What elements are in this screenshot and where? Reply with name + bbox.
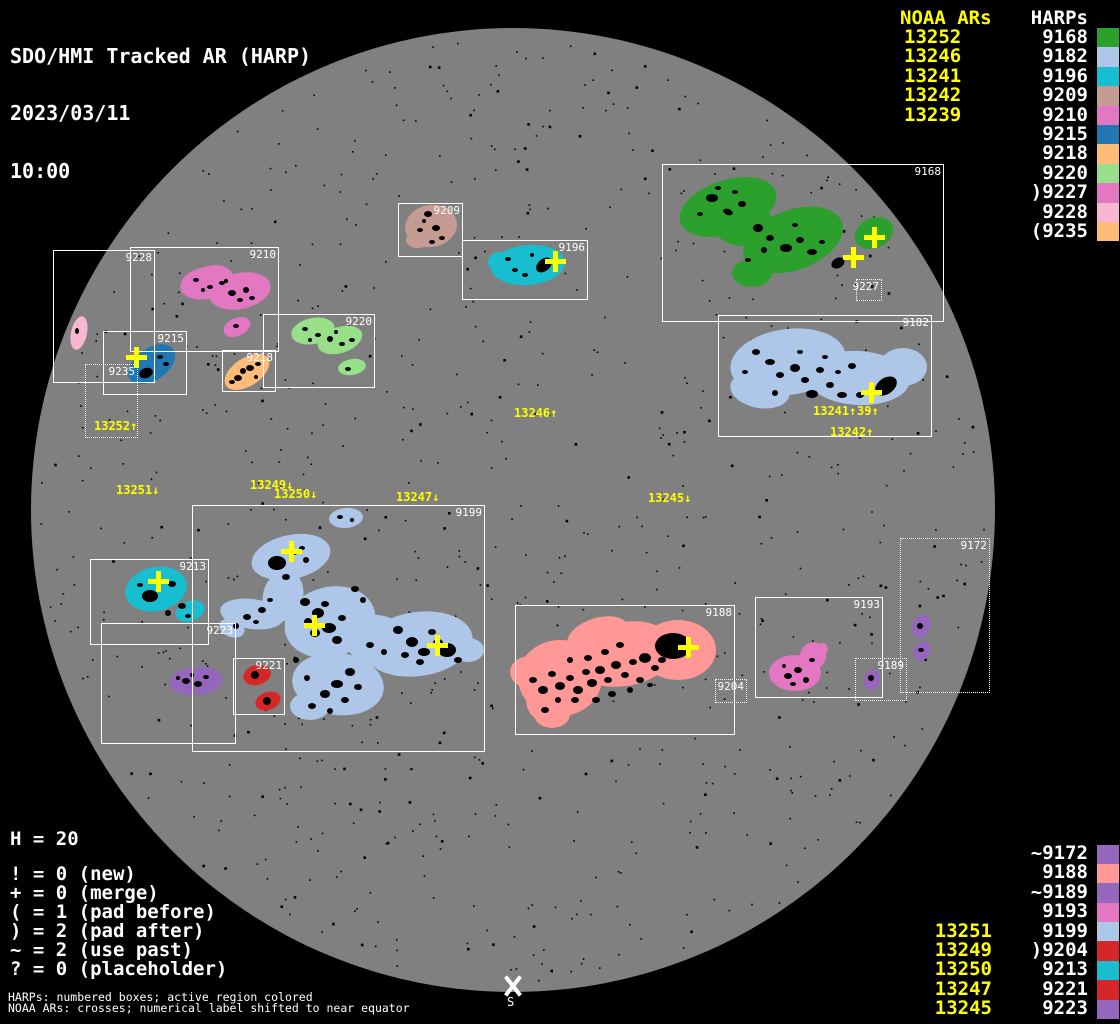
harp-box-label-9209: 9209: [434, 205, 461, 216]
noaa-disk-label: 13242↑: [830, 426, 873, 438]
harp-box-9168: 9168: [662, 164, 944, 322]
harp-box-label-9213: 9213: [180, 561, 207, 572]
footnote-noaa: NOAA ARs: crosses; numerical label shift…: [8, 1003, 410, 1014]
harp-item: 9182: [1002, 47, 1088, 66]
noaa-ars-list-bottom: 1325113249132501324713245: [930, 922, 992, 1019]
harp-color-swatch-9220: [1097, 164, 1119, 183]
harp-item: 9223: [1020, 999, 1088, 1018]
harp-box-9221: 9221: [233, 658, 285, 715]
noaa-ars-list-top: 1325213246132411324213239: [904, 28, 961, 125]
harp-swatches-bottom: [1097, 845, 1119, 1020]
title-block: SDO/HMI Tracked AR (HARP) 2023/03/11 10:…: [10, 8, 311, 220]
harp-color-swatch-9189: [1097, 883, 1119, 902]
harp-box-label-9227: 9227: [853, 281, 880, 292]
harp-box-label-9193: 9193: [854, 599, 881, 610]
harp-box-9204: 9204: [715, 679, 747, 703]
harp-box-9172: 9172: [900, 538, 990, 693]
legend-line: ? = 0 (placeholder): [10, 960, 227, 979]
noaa-disk-label: 13245↓: [648, 492, 691, 504]
noaa-cross: [126, 347, 147, 368]
legend-lines: ! = 0 (new)+ = 0 (merge)( = 1 (pad befor…: [10, 865, 227, 979]
harp-color-swatch-9168: [1097, 28, 1119, 47]
noaa-cross: [281, 541, 302, 562]
noaa-cross: [861, 382, 882, 403]
noaa-disk-label: 13241↑: [813, 405, 856, 417]
harp-item: 9188: [1020, 863, 1088, 882]
harp-box-9188: 9188: [515, 605, 735, 735]
noaa-disk-label: 13251↓: [116, 484, 159, 496]
harps-list-top: 91689182919692099210921592189220)9227922…: [1002, 28, 1088, 241]
noaa-cross: [304, 615, 325, 636]
noaa-disk-label: 13247↓: [396, 491, 439, 503]
harp-box-label-9210: 9210: [250, 249, 277, 260]
harp-color-swatch-9199: [1097, 922, 1119, 941]
harp-color-swatch-9213: [1097, 961, 1119, 980]
harp-color-swatch-9209: [1097, 86, 1119, 105]
harp-box-label-9188: 9188: [706, 607, 733, 618]
harp-color-swatch-9228: [1097, 203, 1119, 222]
harp-color-swatch-9204: [1097, 941, 1119, 960]
sdo-hmi-harp-map: 9168918292099196922892109220921592189199…: [0, 0, 1120, 1024]
harp-box-label-9215: 9215: [158, 333, 185, 344]
harp-box-9218: 9218: [222, 350, 276, 392]
harp-box-label-9218: 9218: [247, 352, 274, 363]
harp-box-9196: 9196: [462, 240, 588, 300]
harp-color-swatch-9188: [1097, 864, 1119, 883]
harp-swatches-top: [1097, 28, 1119, 241]
harp-item: 9218: [1002, 144, 1088, 163]
noaa-cross: [545, 251, 566, 272]
noaa-cross: [843, 247, 864, 268]
harp-box-label-9168: 9168: [915, 166, 942, 177]
harp-color-swatch-9196: [1097, 67, 1119, 86]
south-pole-marker-icon: [505, 976, 521, 996]
harp-box-9220: 9220: [263, 314, 375, 388]
noaa-disk-label: 13250↓: [274, 488, 317, 500]
harp-color-swatch-9215: [1097, 125, 1119, 144]
noaa-cross: [678, 637, 699, 658]
harp-item: )9227: [1002, 183, 1088, 202]
harp-box-9223: 9223: [101, 623, 236, 744]
harp-item: (9235: [1002, 222, 1088, 241]
noaa-ar-item: 13250: [930, 960, 992, 979]
noaa-ar-item: 13242: [904, 86, 961, 105]
harp-box-9182: 9182: [718, 315, 932, 437]
harp-color-swatch-9227: [1097, 183, 1119, 202]
harp-box-label-9221: 9221: [256, 660, 283, 671]
plot-date: 2023/03/11: [10, 104, 311, 123]
noaa-ar-item: 13239: [904, 106, 961, 125]
harp-color-swatch-9218: [1097, 144, 1119, 163]
noaa-disk-label: 13252↑: [94, 420, 137, 432]
harp-color-swatch-9172: [1097, 845, 1119, 864]
noaa-cross: [427, 635, 448, 656]
harp-item: 9193: [1020, 902, 1088, 921]
harp-box-9209: 9209: [398, 203, 463, 257]
harp-item: 9209: [1002, 86, 1088, 105]
harp-box-label-9223: 9223: [207, 625, 234, 636]
harp-box-label-9220: 9220: [346, 316, 373, 327]
noaa-cross: [864, 227, 885, 248]
harp-color-swatch-9221: [1097, 980, 1119, 999]
harp-item: 9213: [1020, 960, 1088, 979]
noaa-ar-item: 13246: [904, 47, 961, 66]
noaa-disk-label: 13246↑: [514, 407, 557, 419]
harp-color-swatch-9210: [1097, 106, 1119, 125]
plot-time: 10:00: [10, 162, 311, 181]
plot-title: SDO/HMI Tracked AR (HARP): [10, 47, 311, 66]
harp-color-swatch-9223: [1097, 1000, 1119, 1019]
south-pole-label: S: [507, 996, 514, 1008]
harp-box-label-9204: 9204: [718, 681, 745, 692]
harp-box-9227: 9227: [856, 279, 882, 301]
harp-box-label-9172: 9172: [961, 540, 988, 551]
harp-box-label-9199: 9199: [456, 507, 483, 518]
noaa-ar-item: 13245: [930, 999, 992, 1018]
noaa-cross: [148, 571, 169, 592]
harps-list-bottom: ~91729188~918991939199)9204921392219223: [1020, 844, 1088, 1019]
harp-count: H = 20: [10, 830, 79, 849]
noaa-disk-label: 39↑: [857, 405, 879, 417]
harp-color-swatch-9182: [1097, 47, 1119, 66]
harp-color-swatch-9235: [1097, 222, 1119, 241]
harp-color-swatch-9193: [1097, 903, 1119, 922]
harp-box-label-9182: 9182: [903, 317, 930, 328]
